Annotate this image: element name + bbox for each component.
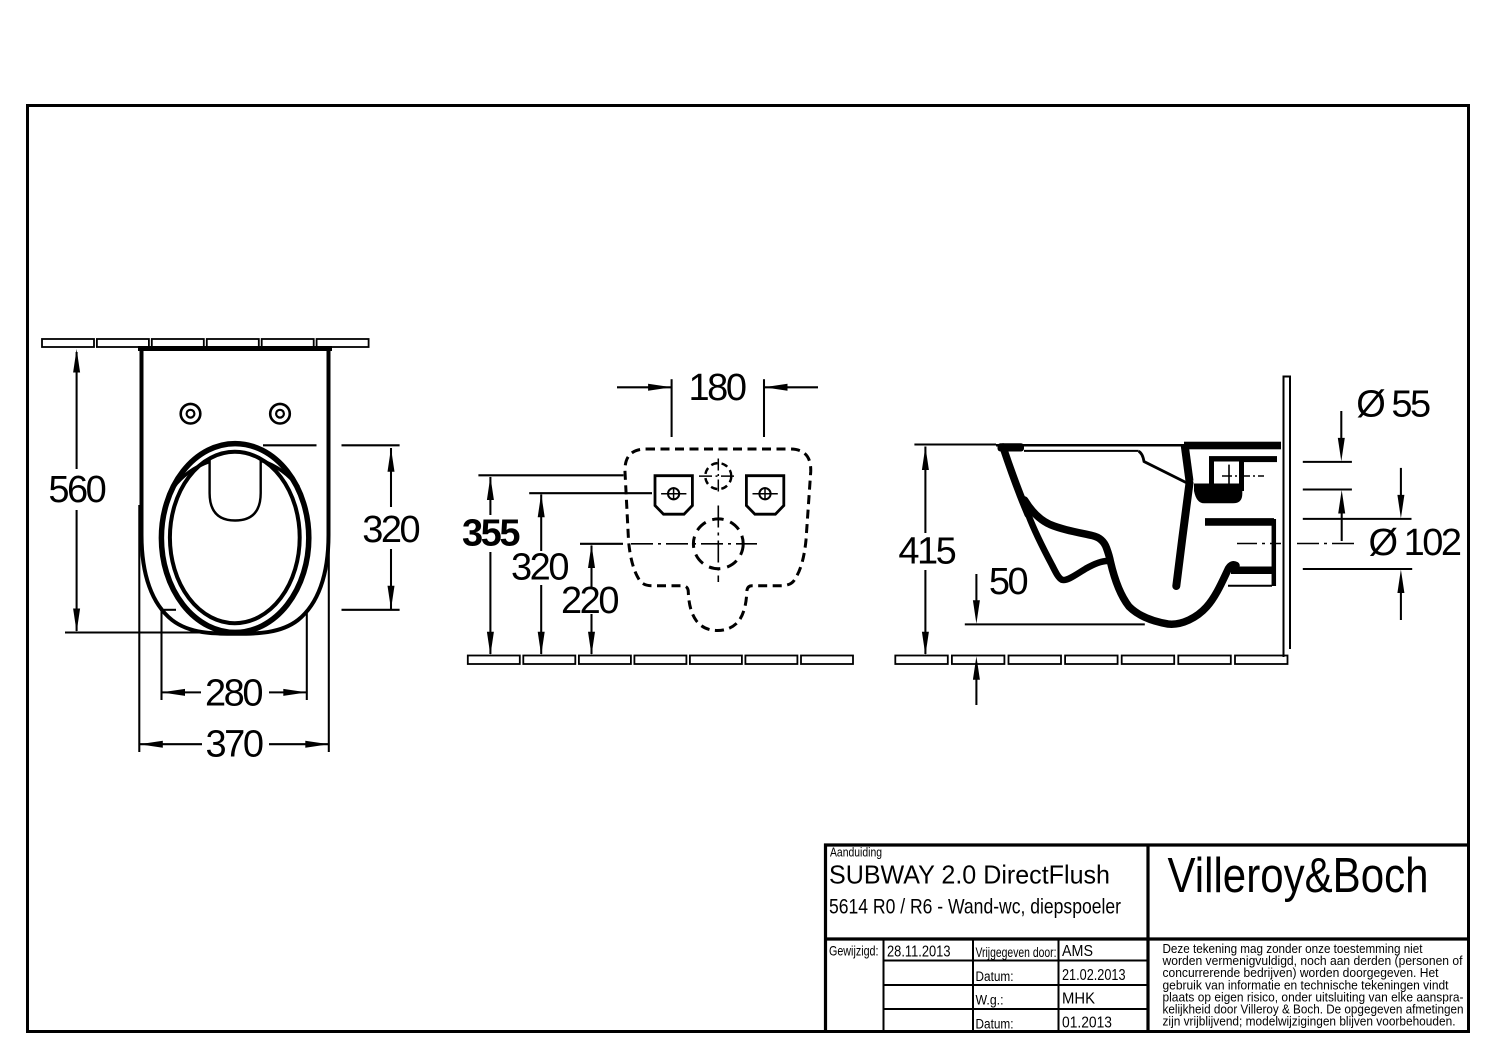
svg-text:Datum:: Datum: (976, 1017, 1014, 1032)
svg-text:5614 R0 / R6 - Wand-wc, diepsp: 5614 R0 / R6 - Wand-wc, diepspoeler (829, 895, 1121, 919)
svg-text:28.11.2013: 28.11.2013 (887, 944, 951, 961)
svg-text:Villeroy&Boch: Villeroy&Boch (1168, 849, 1429, 903)
svg-text:Ø 102: Ø 102 (1368, 522, 1460, 564)
svg-text:320: 320 (511, 547, 568, 589)
svg-text:180: 180 (689, 367, 746, 409)
svg-text:370: 370 (206, 723, 263, 765)
svg-text:W.g.:: W.g.: (976, 993, 1004, 1008)
svg-text:220: 220 (561, 580, 618, 622)
svg-text:Ø 55: Ø 55 (1356, 384, 1430, 426)
svg-text:AMS: AMS (1062, 943, 1093, 960)
svg-text:21.02.2013: 21.02.2013 (1062, 967, 1126, 984)
svg-text:Gewijzigd:: Gewijzigd: (829, 943, 879, 959)
svg-text:MHK: MHK (1062, 991, 1096, 1008)
svg-text:SUBWAY 2.0 DirectFlush: SUBWAY 2.0 DirectFlush (829, 860, 1110, 890)
svg-text:Datum:: Datum: (976, 969, 1014, 984)
svg-text:280: 280 (205, 673, 262, 715)
svg-text:320: 320 (362, 509, 419, 551)
svg-text:415: 415 (898, 530, 955, 572)
svg-text:Aanduiding: Aanduiding (830, 845, 882, 860)
svg-text:zijn vrijblijvend; modelwijzig: zijn vrijblijvend; modelwijzigingen blij… (1163, 1014, 1456, 1029)
svg-text:01.2013: 01.2013 (1062, 1015, 1112, 1032)
svg-text:Vrijgegeven door:: Vrijgegeven door: (976, 945, 1057, 960)
svg-text:560: 560 (48, 469, 105, 511)
svg-text:50: 50 (989, 561, 1028, 603)
